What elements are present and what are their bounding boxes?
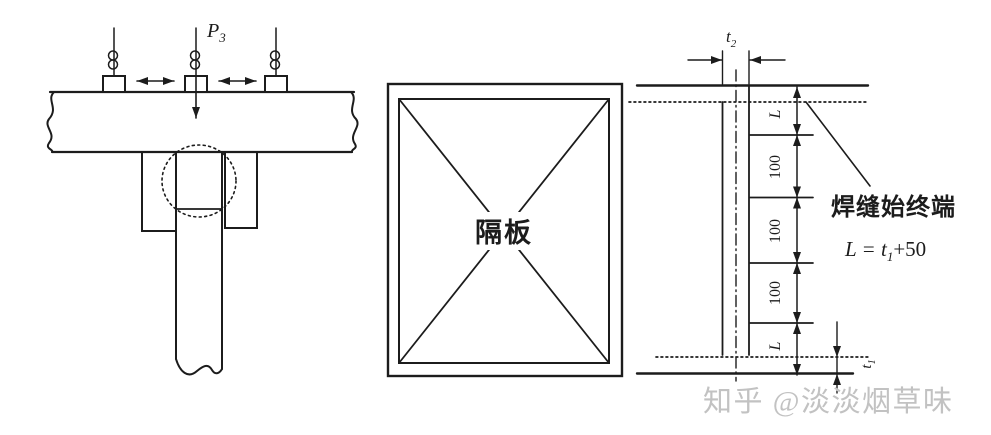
beam-column-joint-diagram: P3	[47, 20, 357, 374]
roller-support-left	[103, 76, 125, 92]
weld-length-formula: L = t1+50	[844, 237, 926, 264]
dim-label-L-bottom: L	[767, 341, 784, 351]
t1-label: t1	[859, 359, 878, 368]
dim-label-100-3: 100	[767, 281, 784, 305]
weld-detail-drawing: P3 隔板 t2	[0, 0, 991, 435]
t2-label: t2	[726, 27, 737, 50]
diaphragm-plate-diagram: 隔板	[388, 84, 622, 376]
dim-label-L-top: L	[767, 109, 784, 119]
scanned-technical-figure: P3 隔板 t2	[0, 0, 991, 435]
column-break-line	[176, 359, 222, 374]
beam-break-line-left	[47, 92, 54, 152]
diaphragm-label: 隔板	[475, 218, 533, 248]
load-label-p3: P3	[206, 20, 226, 45]
zhihu-watermark: 知乎 @淡淡烟草味	[703, 378, 953, 420]
weld-start-end-note: 焊缝始终端	[831, 193, 956, 221]
weld-dimension-diagram: t2 L 100 100 100 L t1 焊缝始终端 L = t1+50	[629, 27, 956, 393]
dim-label-100-2: 100	[767, 219, 784, 243]
roller-support-right	[265, 76, 287, 92]
right-bracket-plate	[225, 152, 257, 228]
dim-label-100-1: 100	[767, 155, 784, 179]
spring-symbol-right	[271, 28, 280, 76]
spring-symbol-center	[191, 28, 200, 76]
weld-note-leader-line	[806, 102, 870, 186]
left-bracket-plate	[142, 152, 176, 231]
beam-break-line-right	[351, 92, 358, 152]
spring-symbol-left	[109, 28, 118, 76]
